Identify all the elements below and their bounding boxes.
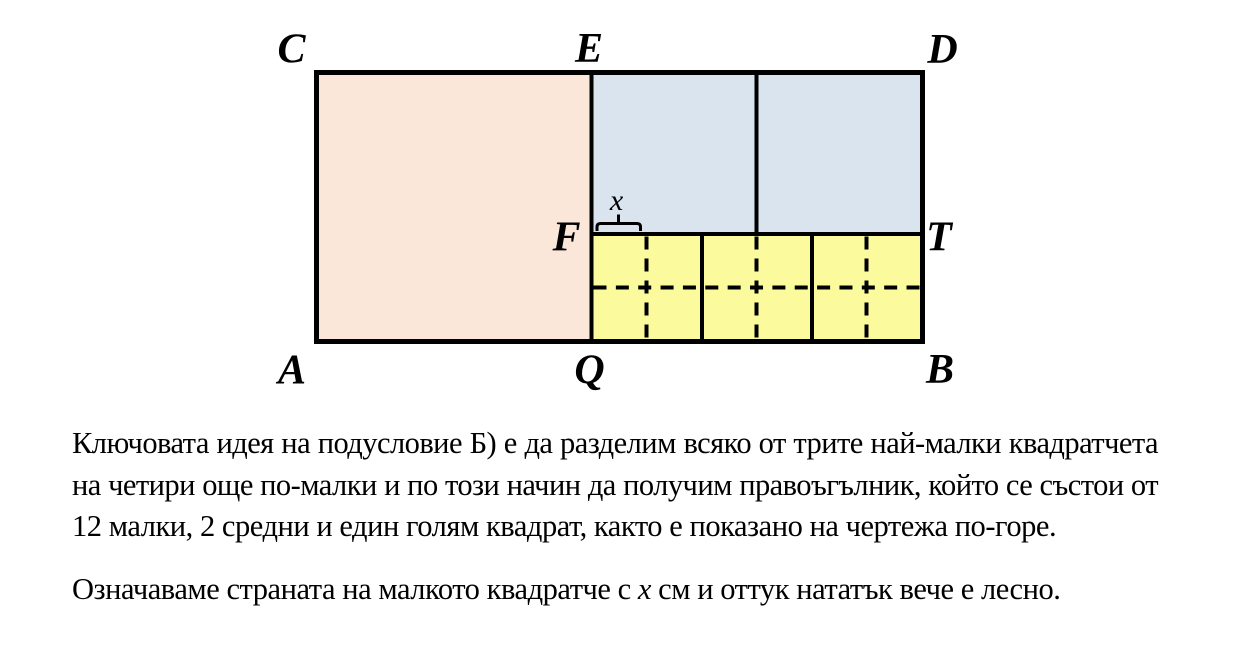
svg-text:Q: Q bbox=[574, 348, 604, 394]
svg-text:B: B bbox=[925, 347, 954, 393]
svg-text:x: x bbox=[609, 184, 624, 217]
svg-text:D: D bbox=[926, 27, 957, 73]
svg-text:F: F bbox=[551, 215, 580, 261]
svg-text:E: E bbox=[574, 26, 603, 72]
svg-text:T: T bbox=[926, 215, 954, 261]
svg-text:A: A bbox=[275, 348, 306, 394]
svg-text:C: C bbox=[277, 27, 306, 73]
